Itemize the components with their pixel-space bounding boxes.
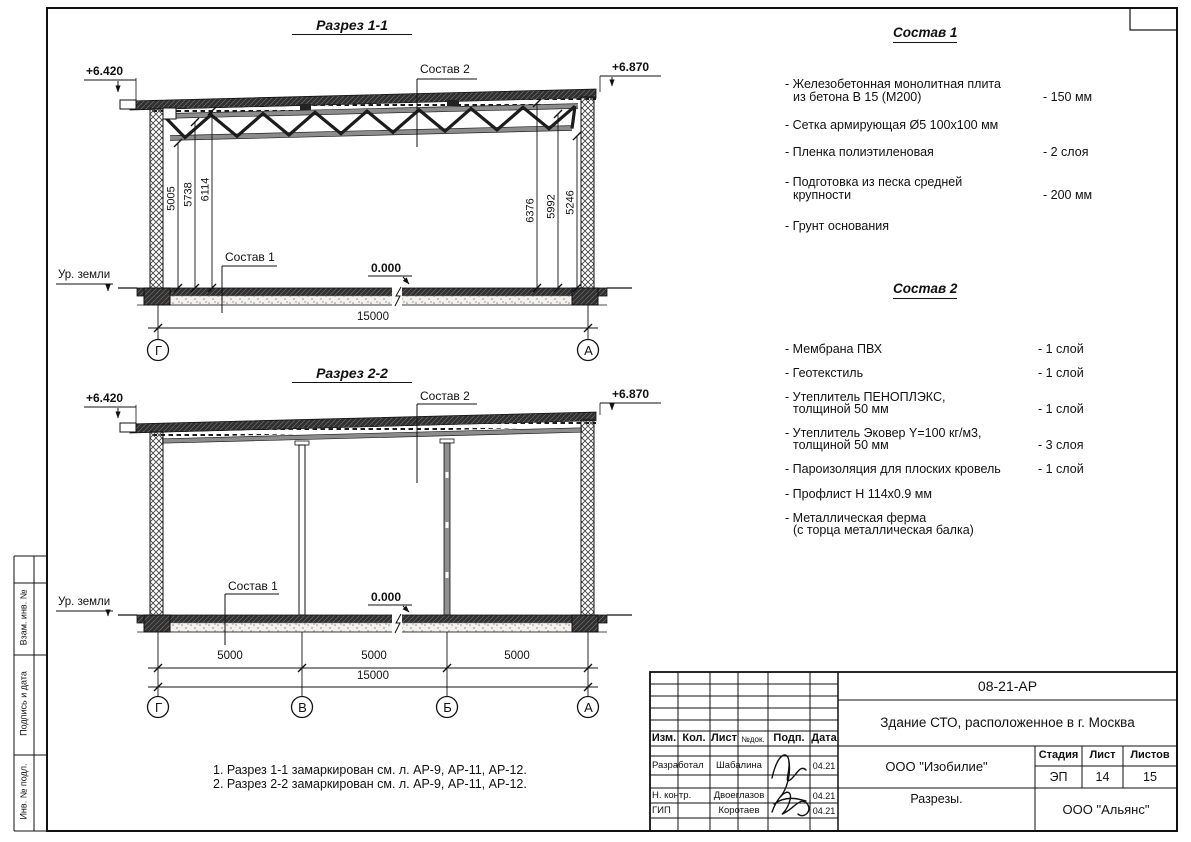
dim-5005: 5005 [167, 177, 178, 221]
sostav2-item-text: - Профлист Н 114х0.9 мм [785, 488, 932, 501]
sostav1-item-text: - Пленка полиэтиленовая [785, 146, 934, 159]
sostav2-item-text: толщиной 50 мм [793, 403, 889, 416]
col-podp: Подп. [768, 733, 810, 744]
level-mark-right-2: +6.870 [612, 388, 649, 400]
axis-label-a-2: А [578, 701, 599, 714]
canopy-cap-1 [120, 100, 136, 109]
sostav2-item-value: - 3 слоя [1038, 439, 1083, 452]
sostav1-item-value: - 2 слоя [1043, 146, 1088, 159]
corner-box [1130, 8, 1177, 30]
company-name: ООО "Изобилие" [838, 760, 1035, 773]
note-2: 2. Разрез 2-2 замаркирован см. л. АР-9, … [213, 778, 527, 791]
strip-label-inv: Инв. № подл. [20, 754, 29, 830]
section1-title: Разрез 1-1 [292, 18, 412, 35]
ground-level-label-1: Ур. земли [58, 270, 110, 282]
leader-sostav2-label-2: Состав 2 [420, 390, 470, 402]
signature-nkontr [772, 792, 809, 815]
sheet-label: Лист [1082, 750, 1123, 761]
canopy-cap-2 [120, 423, 136, 432]
strip-label-podpis: Подпись и дата [20, 654, 29, 754]
role-nkontr: Н. контр. [652, 791, 691, 801]
zero-level-label-2: 0.000 [371, 591, 401, 603]
dim-6114: 6114 [201, 168, 212, 212]
sheets-label: Листов [1123, 750, 1177, 761]
sand-bed-2 [163, 623, 581, 632]
sostav1-item-text: - Железобетонная монолитная плита [785, 78, 1001, 91]
level-mark-right-1: +6.870 [612, 61, 649, 73]
name-shabalina: Шабалина [710, 761, 768, 771]
col-kol: Кол. [678, 733, 710, 744]
dim-5246: 5246 [566, 181, 577, 225]
column-v [299, 445, 305, 615]
sostav2-item-value: - 1 слой [1038, 343, 1084, 356]
sostav1-item-value: - 150 мм [1043, 91, 1092, 104]
dim-span-2: 5000 [344, 651, 404, 663]
sheets-value: 15 [1123, 771, 1177, 784]
sheet-frame [47, 8, 1177, 831]
sostav2-item-text: - Геотекстиль [785, 367, 863, 380]
name-korotaev: Коротаев [710, 806, 768, 816]
sostav1-item-text: - Подготовка из песка средней [785, 176, 962, 189]
wall-left-1 [150, 109, 163, 288]
note-1: 1. Разрез 1-1 замаркирован см. л. АР-9, … [213, 764, 527, 777]
leader-sostav1-label-2: Состав 1 [228, 580, 278, 592]
drawing-sheet: Разрез 1-1 +6.420 +6.870 Состав 2 Состав… [0, 0, 1191, 842]
axis-label-b-2: Б [437, 701, 458, 714]
sostav1-item-text: крупности [793, 189, 851, 202]
role-razrabotal: Разработал [652, 761, 704, 771]
col-izm: Изм. [650, 733, 678, 744]
role-gip: ГИП [652, 806, 671, 816]
date-razrabotal: 04.21 [810, 762, 838, 771]
level-mark-left-1: +6.420 [86, 65, 123, 77]
sostav2-title: Состав 2 [893, 282, 957, 299]
sostav2-item-value: - 1 слой [1038, 403, 1084, 416]
drawing-name: Разрезы. [838, 793, 1035, 806]
sostav2-item-text: (с торца металлическая балка) [793, 524, 974, 537]
signatures [772, 755, 809, 816]
project-title: Здание СТО, расположенное в г. Москва [838, 716, 1177, 730]
stage-value: ЭП [1035, 771, 1082, 784]
sostav1-item-value: - 200 мм [1043, 189, 1092, 202]
col-ndok: №док. [738, 736, 768, 744]
strip-label-vzam: Взам. инв. № [20, 582, 29, 654]
sostav1-item-text: - Грунт основания [785, 220, 889, 233]
sostav1-item-text: - Сетка армирующая Ø5 100х100 мм [785, 119, 998, 132]
level-mark-left-2: +6.420 [86, 392, 123, 404]
footing [572, 615, 598, 632]
doc-number: 08-21-АР [838, 679, 1177, 693]
sostav2-item-text: - Пароизоляция для плоских кровель [785, 463, 1001, 476]
dim-total-2: 15000 [343, 671, 403, 683]
dim-5992: 5992 [547, 185, 558, 229]
dim-span-1: 5000 [200, 651, 260, 663]
section2-title: Разрез 2-2 [292, 366, 412, 383]
wall-right-2 [581, 420, 594, 615]
dim-5738: 5738 [184, 173, 195, 217]
sand-bed-1 [163, 296, 581, 305]
sostav2-item-value: - 1 слой [1038, 367, 1084, 380]
footing [144, 288, 170, 305]
sostav2-item-text: толщиной 50 мм [793, 439, 889, 452]
column-b [444, 443, 450, 615]
date-nkontr: 04.21 [810, 792, 838, 801]
wall-left-2 [150, 432, 163, 615]
sostav2-item-value: - 1 слой [1038, 463, 1084, 476]
date-gip: 04.21 [810, 807, 838, 816]
col-list: Лист [710, 733, 738, 744]
name-dvoeglazov: Двоеглазов [710, 791, 768, 801]
leader-sostav1-label-1: Состав 1 [225, 251, 275, 263]
col-data: Дата [810, 733, 838, 744]
footing [144, 615, 170, 632]
footing [572, 288, 598, 305]
contractor-name: ООО "Альянс" [1035, 803, 1177, 816]
axis-label-g-1: Г [148, 344, 169, 357]
wall-right-1 [581, 97, 594, 288]
axis-label-v-2: В [292, 701, 313, 714]
truss-bearing [163, 108, 176, 119]
stage-label: Стадия [1035, 750, 1082, 761]
sostav1-item-text: из бетона В 15 (М200) [793, 91, 921, 104]
zero-level-label-1: 0.000 [371, 262, 401, 274]
signature-razrabotal-tail [781, 762, 789, 796]
dim-total-1: 15000 [343, 312, 403, 324]
axis-label-g-2: Г [148, 701, 169, 714]
ground-level-label-2: Ур. земли [58, 597, 110, 609]
sostav2-item-text: - Мембрана ПВХ [785, 343, 882, 356]
sostav1-title: Состав 1 [893, 26, 957, 43]
axis-label-a-1: А [578, 344, 599, 357]
floor-slab-2 [137, 615, 607, 623]
sheet-value: 14 [1082, 771, 1123, 784]
dim-6376: 6376 [526, 189, 537, 233]
dim-span-3: 5000 [487, 651, 547, 663]
leader-sostav2-label-1: Состав 2 [420, 63, 470, 75]
